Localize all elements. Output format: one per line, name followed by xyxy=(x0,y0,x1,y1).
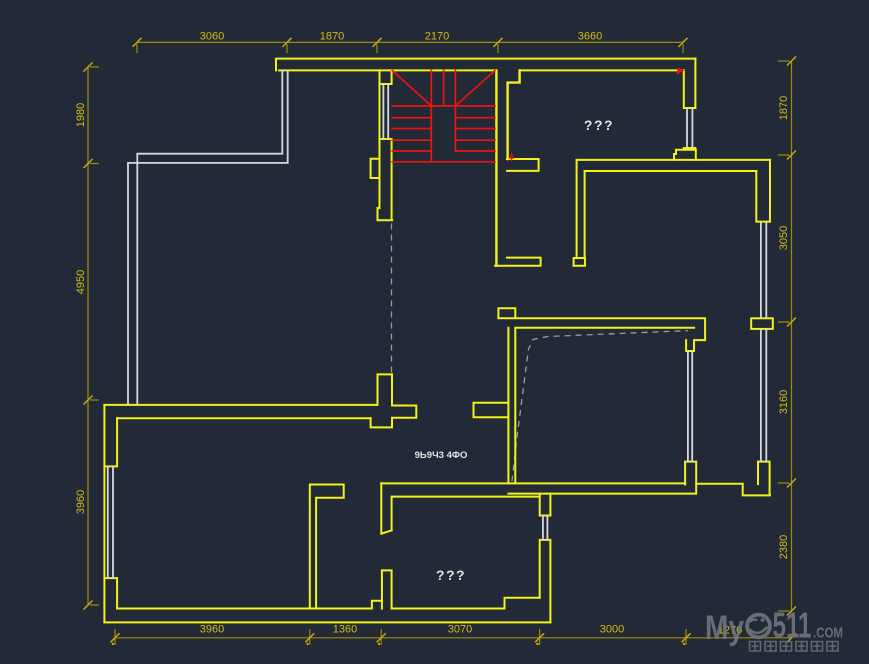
svg-text:My: My xyxy=(705,609,744,647)
svg-text:2170: 2170 xyxy=(425,31,449,43)
svg-text:3060: 3060 xyxy=(200,31,224,43)
svg-text:3050: 3050 xyxy=(778,226,790,250)
svg-text:1870: 1870 xyxy=(320,31,344,43)
svg-text:3960: 3960 xyxy=(75,490,87,514)
svg-text:3660: 3660 xyxy=(578,31,602,43)
svg-text:3000: 3000 xyxy=(600,624,624,636)
svg-text:511: 511 xyxy=(773,605,812,646)
svg-text:???: ??? xyxy=(436,567,466,583)
svg-text:1870: 1870 xyxy=(778,96,790,120)
svg-text:3960: 3960 xyxy=(200,624,224,636)
svg-text:???: ??? xyxy=(584,117,614,133)
svg-text:4950: 4950 xyxy=(75,270,87,294)
svg-text:3160: 3160 xyxy=(778,390,790,414)
svg-text:3070: 3070 xyxy=(448,624,472,636)
svg-text:2380: 2380 xyxy=(778,535,790,559)
svg-text:1360: 1360 xyxy=(333,624,357,636)
svg-text:1980: 1980 xyxy=(75,103,87,127)
svg-text:9Ь9Ч3 4ФО: 9Ь9Ч3 4ФО xyxy=(415,450,468,461)
svg-text:.COM: .COM xyxy=(813,626,843,642)
